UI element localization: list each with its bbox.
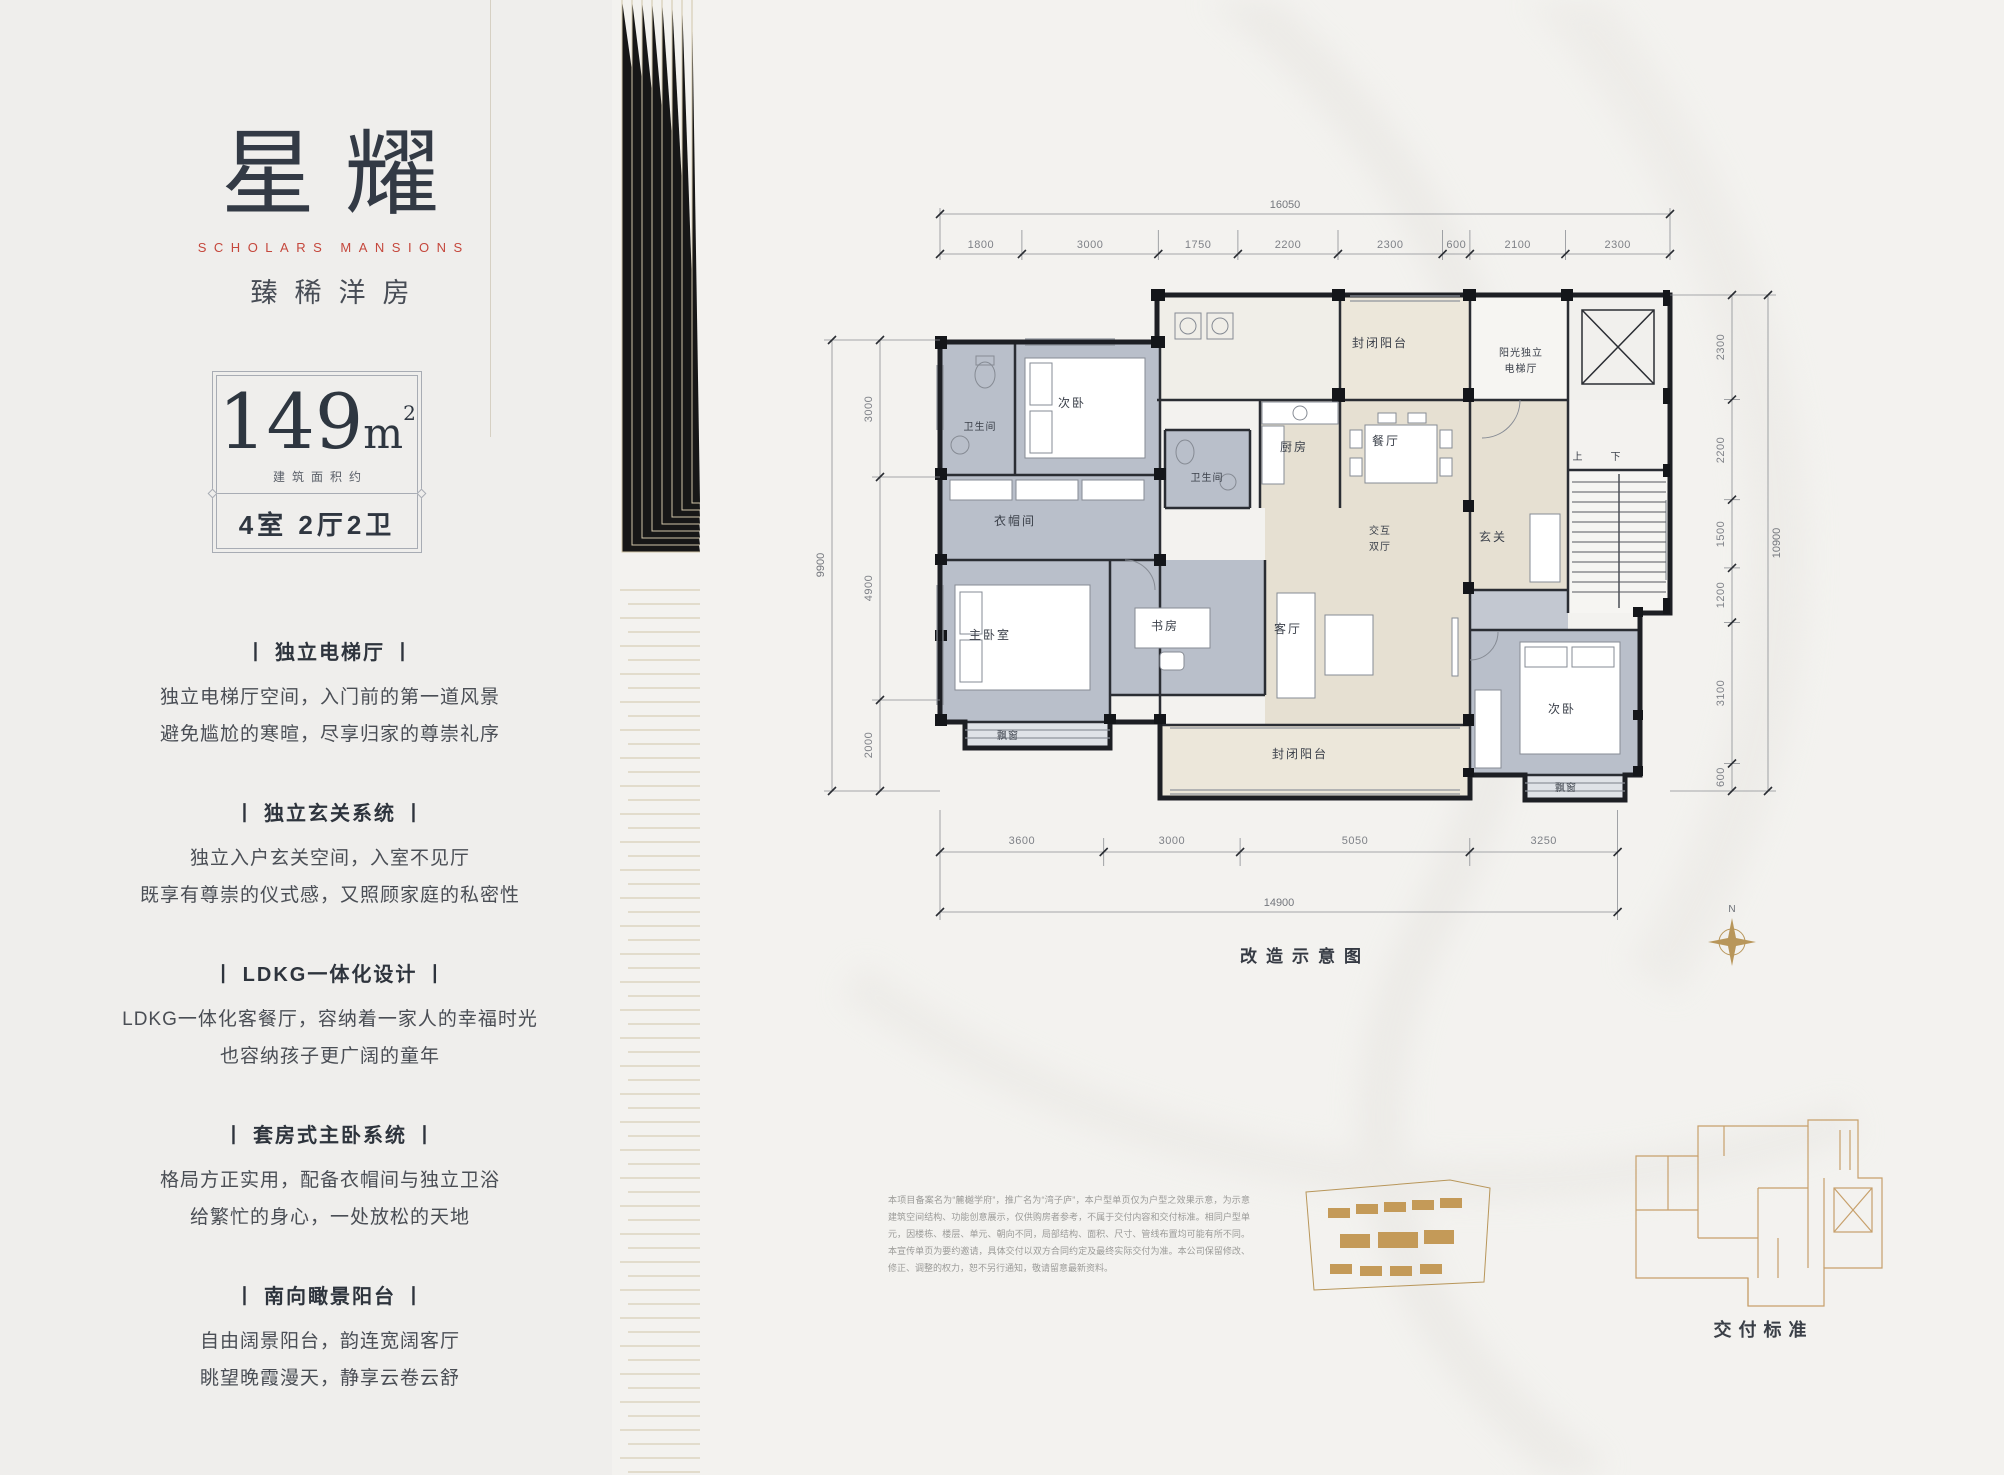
dim-right-5: 600 xyxy=(1715,767,1727,787)
feature-foyer-system: 丨 独立玄关系统 丨 独立入户玄关空间，入室不见厅 既享有尊崇的仪式感，又照顾家… xyxy=(40,797,620,914)
dim-top-6: 2100 xyxy=(1504,239,1530,251)
feature-line: 既享有尊崇的仪式感，又照顾家庭的私密性 xyxy=(40,877,620,914)
dim-top-2: 1750 xyxy=(1185,239,1211,251)
feature-ldkg-design: 丨 LDKG一体化设计 丨 LDKG一体化客餐厅，容纳着一家人的幸福时光 也容纳… xyxy=(40,958,620,1075)
room-label-bedroom-top: 次卧 xyxy=(1058,396,1086,410)
gold-line-ornament xyxy=(612,0,712,1475)
delivery-standard-label: 交付标准 xyxy=(1630,1316,1890,1342)
brochure-page: 星耀 SCHOLARS MANSIONS 臻稀洋房 149m2 建筑面积约 4室… xyxy=(0,0,2004,1475)
dim-top-1: 3000 xyxy=(1077,239,1103,251)
dim-bottom-0: 3600 xyxy=(1009,835,1035,847)
floor-plan-svg: 卫生间 次卧 卫生间 厨房 餐厅 封闭阳台 阳光独立 电梯厅 玄关 交互 双厅 … xyxy=(780,130,1830,1000)
dim-bottom-2: 5050 xyxy=(1342,835,1368,847)
feature-line: 独立入户玄关空间，入室不见厅 xyxy=(40,840,620,877)
feature-master-suite: 丨 套房式主卧系统 丨 格局方正实用，配备衣帽间与独立卫浴 给繁忙的身心，一处放… xyxy=(40,1119,620,1236)
feature-elevator-hall: 丨 独立电梯厅 丨 独立电梯厅空间，入门前的第一道风景 避免尴尬的寒暄，尽享归家… xyxy=(40,636,620,753)
dim-left-0: 3000 xyxy=(863,396,875,422)
feature-line: 给繁忙的身心，一处放松的天地 xyxy=(40,1199,620,1236)
dim-right-2: 1500 xyxy=(1715,521,1727,547)
feature-line: 眺望晚霞漫天，静享云卷云舒 xyxy=(40,1360,620,1397)
dim-right-3: 1200 xyxy=(1715,582,1727,608)
brand-tagline: 臻稀洋房 xyxy=(60,271,600,310)
area-note: 建筑面积约 xyxy=(213,468,421,485)
room-label-foyer: 玄关 xyxy=(1479,529,1507,544)
dim-left-1: 4900 xyxy=(863,575,875,601)
dim-right-total: 10900 xyxy=(1771,528,1783,559)
room-label-balcony-bottom: 封闭阳台 xyxy=(1272,746,1328,761)
dim-top-4: 2300 xyxy=(1377,239,1403,251)
room-label-bay-window-right: 飘窗 xyxy=(1555,781,1577,794)
feature-title: 丨 LDKG一体化设计 丨 xyxy=(40,958,620,987)
dim-bottom-1: 3000 xyxy=(1159,835,1185,847)
feature-title: 丨 南向瞰景阳台 丨 xyxy=(40,1280,620,1309)
feature-title: 丨 套房式主卧系统 丨 xyxy=(40,1119,620,1148)
feature-list: 丨 独立电梯厅 丨 独立电梯厅空间，入门前的第一道风景 避免尴尬的寒暄，尽享归家… xyxy=(40,636,620,1441)
area-card: 149m2 建筑面积约 4室 2厅2卫 xyxy=(212,371,422,553)
feature-line: LDKG一体化客餐厅，容纳着一家人的幸福时光 xyxy=(40,1001,620,1038)
feature-south-balcony: 丨 南向瞰景阳台 丨 自由阔景阳台，韵连宽阔客厅 眺望晚霞漫天，静享云卷云舒 xyxy=(40,1280,620,1397)
brand-logo-en: SCHOLARS MANSIONS xyxy=(60,240,600,255)
dim-top-total: 16050 xyxy=(1270,199,1301,211)
compass-north-label: N xyxy=(1728,904,1735,915)
room-label-bath1: 卫生间 xyxy=(964,420,997,433)
plan-caption: 改造示意图 xyxy=(1240,946,1370,966)
brand-block: 星耀 SCHOLARS MANSIONS 臻稀洋房 xyxy=(60,128,600,310)
dim-top-7: 2300 xyxy=(1604,239,1630,251)
delivery-standard-plan xyxy=(1628,1118,1890,1313)
feature-line: 独立电梯厅空间，入门前的第一道风景 xyxy=(40,679,620,716)
area-number: 149 xyxy=(218,377,363,466)
disclaimer-text: 本项目备案名为“麓樾学府”，推广名为“湾子庐”，本户型单页仅为户型之效果示意，为… xyxy=(888,1192,1250,1277)
feature-title: 丨 独立电梯厅 丨 xyxy=(40,636,620,665)
dim-right-1: 2200 xyxy=(1715,437,1727,463)
room-label-dining: 餐厅 xyxy=(1372,433,1400,448)
dim-bottom-3: 3250 xyxy=(1530,835,1556,847)
room-label-study: 书房 xyxy=(1151,618,1179,633)
room-label-bay-window-left: 飘窗 xyxy=(997,729,1019,742)
room-label-balcony-top: 封闭阳台 xyxy=(1352,335,1408,350)
card-divider xyxy=(213,493,421,494)
room-label-elevator-hall-2: 电梯厅 xyxy=(1505,362,1538,375)
room-label-master: 主卧室 xyxy=(969,627,1011,642)
diamond-ornament-icon xyxy=(417,489,427,499)
site-units xyxy=(1328,1198,1462,1276)
dim-top-3: 2200 xyxy=(1275,239,1301,251)
feature-line: 也容纳孩子更广阔的童年 xyxy=(40,1038,620,1075)
site-key-plan xyxy=(1300,1178,1495,1298)
feature-line: 自由阔景阳台，韵连宽阔客厅 xyxy=(40,1323,620,1360)
stair-up-label: 上 xyxy=(1573,451,1584,463)
dim-left-2: 2000 xyxy=(863,732,875,758)
area-unit: m2 xyxy=(363,409,416,458)
delivery-plan-lines xyxy=(1636,1120,1882,1306)
compass-icon: N xyxy=(1708,904,1756,966)
dim-left-total: 9900 xyxy=(815,553,827,577)
stair-down-label: 下 xyxy=(1611,452,1622,463)
floor-plan: 卫生间 次卧 卫生间 厨房 餐厅 封闭阳台 阳光独立 电梯厅 玄关 交互 双厅 … xyxy=(780,130,1830,1005)
feature-line: 避免尴尬的寒暄，尽享归家的尊崇礼序 xyxy=(40,716,620,753)
room-label-bedroom-right: 次卧 xyxy=(1548,702,1576,716)
dim-top-5: 600 xyxy=(1446,239,1466,251)
room-layout-label: 4室 2厅2卫 xyxy=(213,505,421,542)
dim-bottom-total: 14900 xyxy=(1264,897,1295,909)
room-label-elevator-hall-1: 阳光独立 xyxy=(1499,346,1543,359)
feature-line: 格局方正实用，配备衣帽间与独立卫浴 xyxy=(40,1162,620,1199)
brand-logo: 星耀 xyxy=(60,128,600,222)
area-value: 149m2 xyxy=(213,384,421,460)
room-label-hall-1: 交互 xyxy=(1369,524,1391,537)
room-label-living: 客厅 xyxy=(1274,621,1302,636)
room-label-kitchen: 厨房 xyxy=(1280,439,1308,454)
feature-title: 丨 独立玄关系统 丨 xyxy=(40,797,620,826)
dim-right-0: 2300 xyxy=(1715,334,1727,360)
dim-right-4: 3100 xyxy=(1715,680,1727,706)
dim-top-0: 1800 xyxy=(968,239,994,251)
room-label-cloakroom: 衣帽间 xyxy=(994,513,1036,528)
room-label-bath2: 卫生间 xyxy=(1191,471,1224,484)
room-label-hall-2: 双厅 xyxy=(1369,541,1391,553)
